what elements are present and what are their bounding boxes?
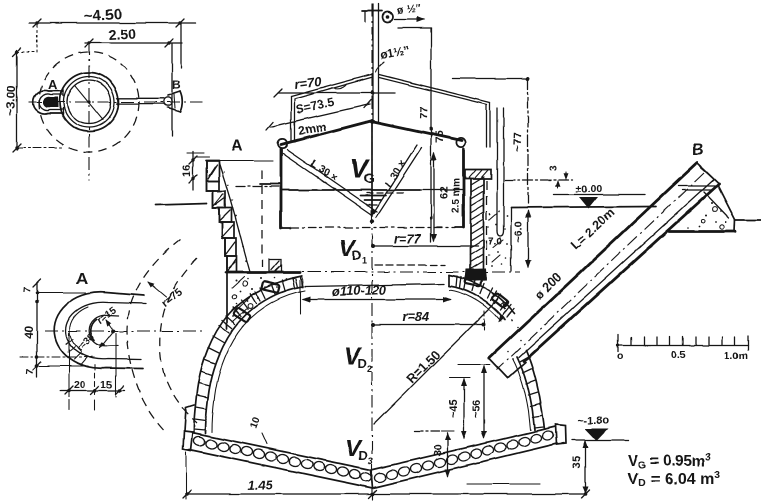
svg-text:A: A bbox=[231, 138, 243, 155]
svg-text:~3.00: ~3.00 bbox=[3, 85, 19, 116]
svg-text:r=77: r=77 bbox=[394, 231, 422, 246]
svg-text:~56: ~56 bbox=[471, 399, 483, 418]
svg-text:D: D bbox=[358, 448, 367, 463]
svg-text:3: 3 bbox=[548, 165, 559, 171]
svg-text:30: 30 bbox=[432, 444, 444, 456]
svg-text:o: o bbox=[617, 350, 623, 362]
svg-text:VG = 0.95m3: VG = 0.95m3 bbox=[628, 452, 711, 471]
svg-text:A: A bbox=[48, 77, 58, 92]
svg-text:2: 2 bbox=[367, 364, 372, 374]
svg-text:r=75: r=75 bbox=[159, 286, 184, 310]
svg-text:D: D bbox=[352, 248, 361, 263]
svg-text:r=38: r=38 bbox=[74, 331, 97, 354]
svg-text:15: 15 bbox=[101, 379, 113, 391]
svg-text:A: A bbox=[76, 269, 88, 288]
svg-text:D: D bbox=[357, 356, 366, 371]
svg-text:~6.0: ~6.0 bbox=[513, 221, 525, 243]
svg-text:r=84: r=84 bbox=[402, 309, 430, 324]
svg-text:0.5: 0.5 bbox=[671, 349, 686, 361]
svg-text:±0.00: ±0.00 bbox=[576, 183, 602, 195]
svg-text:10: 10 bbox=[248, 415, 262, 430]
svg-text:7: 7 bbox=[21, 286, 33, 293]
svg-text:62: 62 bbox=[439, 187, 451, 199]
svg-text:VD = 6.04 m3: VD = 6.04 m3 bbox=[628, 470, 720, 489]
svg-text:ø ½″: ø ½″ bbox=[396, 2, 422, 17]
svg-text:75: 75 bbox=[434, 131, 446, 143]
svg-text:ø1½”: ø1½” bbox=[379, 43, 411, 62]
svg-text:1: 1 bbox=[362, 256, 367, 266]
svg-text:~-1.8o: ~-1.8o bbox=[577, 415, 609, 427]
svg-text:L 30 ×: L 30 × bbox=[308, 158, 339, 185]
svg-text:B: B bbox=[692, 142, 704, 159]
svg-text:~4.50: ~4.50 bbox=[83, 6, 122, 25]
svg-text:1.45: 1.45 bbox=[248, 478, 274, 493]
svg-text:ø110-120: ø110-120 bbox=[332, 282, 388, 299]
svg-text:r=15: r=15 bbox=[95, 305, 119, 326]
svg-text:ø 200: ø 200 bbox=[531, 270, 564, 302]
svg-text:1.0m: 1.0m bbox=[724, 350, 748, 362]
svg-text:B: B bbox=[172, 78, 181, 92]
svg-text:40: 40 bbox=[21, 324, 36, 339]
svg-text:~77: ~77 bbox=[512, 132, 525, 152]
svg-text:77: 77 bbox=[418, 106, 430, 119]
svg-text:3: 3 bbox=[368, 456, 373, 466]
svg-text:~45: ~45 bbox=[448, 399, 460, 418]
svg-text:16: 16 bbox=[181, 165, 193, 177]
svg-text:2.5 mm: 2.5 mm bbox=[451, 178, 462, 213]
svg-text:35: 35 bbox=[571, 456, 583, 468]
svg-text:2.50: 2.50 bbox=[108, 26, 136, 43]
svg-text:R=1.50: R=1.50 bbox=[404, 347, 443, 386]
svg-text:20: 20 bbox=[74, 379, 86, 391]
svg-text:7: 7 bbox=[24, 368, 36, 375]
svg-text:G: G bbox=[364, 170, 375, 186]
